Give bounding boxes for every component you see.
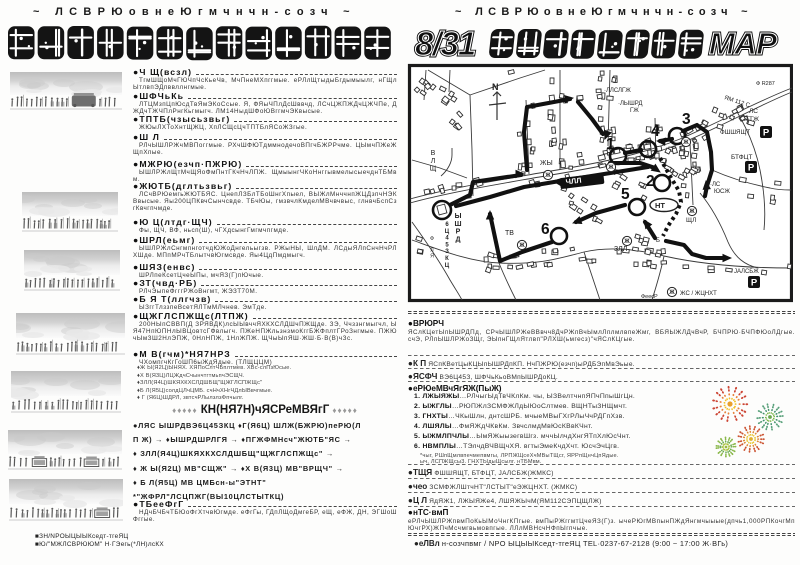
svg-text:Ж: Ж [668,290,675,296]
svg-text:БТФЦТ: БТФЦТ [731,154,752,161]
svg-text:Л: Л [431,158,436,165]
svg-text:Ш: Ш [454,221,461,228]
svg-text:Б: Б [656,238,660,244]
svg-text:Г: Г [693,139,697,146]
svg-text:ЖС / ЖЦНХТ: ЖС / ЖЦНХТ [680,291,717,297]
svg-text:Ж: Ж [518,243,525,249]
svg-text:К: К [445,256,449,262]
svg-text:Ф: Ф [430,236,434,242]
svg-text:ФеесР: ФеесР [641,294,658,300]
svg-text:Ж: Ж [688,209,695,215]
svg-text:P: P [748,163,755,174]
svg-text:Ц: Ц [445,263,450,269]
svg-text:1: 1 [606,136,615,153]
svg-text:Ы: Ы [455,213,462,220]
svg-text:ЛС: ЛС [749,108,758,115]
svg-text:ФШШЯЩТ: ФШШЯЩТ [720,129,750,136]
svg-text:Р: Р [456,229,461,236]
svg-text:Щ: Щ [430,166,437,173]
svg-text:·ЛЫШРД: ·ЛЫШРД [618,101,642,107]
svg-text:·ЛЛСЛГЖ: ·ЛЛСЛГЖ [604,88,631,94]
svg-text:НТ: НТ [655,201,665,210]
svg-text:·ЛС: ·ЛС [710,182,721,188]
svg-text:3: 3 [682,111,691,128]
svg-text:P: P [763,128,770,139]
svg-text:JAЛСБЖ: JAЛСБЖ [734,269,759,275]
svg-text:4: 4 [651,123,660,140]
svg-text:Ж: Ж [623,239,630,245]
svg-text:Я: Я [430,253,434,259]
svg-text:ЧЛЛ: ЧЛЛ [565,176,582,187]
svg-text:ТТЖ: ТТЖ [745,116,759,123]
svg-text:В: В [431,150,436,157]
svg-text:ГЖ: ГЖ [630,108,639,114]
svg-text:ЗЛЛ: ЗЛЛ [614,246,628,253]
svg-text:ТВ: ТВ [505,230,514,237]
svg-text:Ц: Ц [445,229,450,235]
svg-text:Ж: Ж [607,165,614,171]
svg-text:Д: Д [456,236,461,243]
svg-text:ЖЫ: ЖЫ [540,160,553,167]
svg-text:Ф R287: Ф R287 [756,81,775,87]
svg-text:N: N [492,82,499,92]
svg-text:5: 5 [621,186,630,203]
svg-text:Ж: Ж [682,140,689,146]
svg-text:Ж: Ж [544,173,551,179]
svg-text:6: 6 [541,221,550,238]
svg-text:З: З [445,249,449,255]
svg-text:2: 2 [646,173,655,190]
svg-text:ЩЛ: ЩЛ [686,217,696,224]
svg-text:ЮСЖ: ЮСЖ [714,189,730,195]
svg-text:P: P [751,278,758,289]
